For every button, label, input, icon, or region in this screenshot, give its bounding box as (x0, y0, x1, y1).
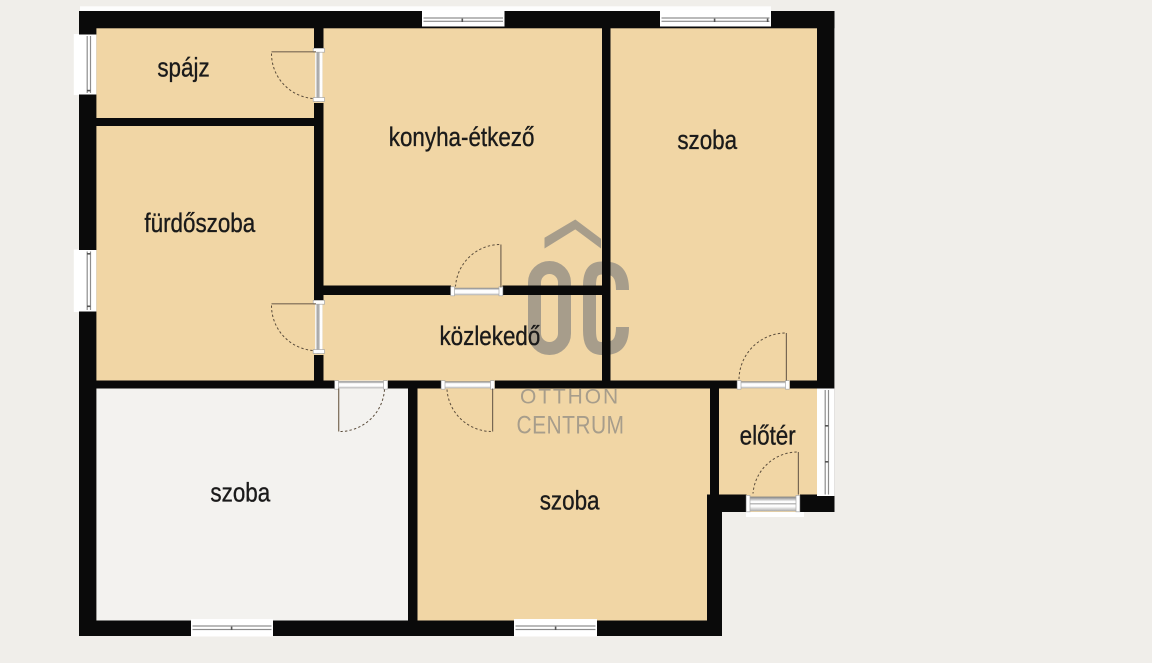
svg-text:konyha-étkező: konyha-étkező (389, 123, 535, 152)
svg-text:CENTRUM: CENTRUM (517, 411, 625, 439)
svg-text:előtér: előtér (740, 422, 796, 451)
svg-text:szoba: szoba (540, 487, 600, 516)
svg-text:szoba: szoba (677, 126, 737, 155)
svg-text:közlekedő: közlekedő (439, 322, 540, 351)
svg-text:fürdőszoba: fürdőszoba (144, 209, 255, 238)
svg-text:szoba: szoba (210, 479, 270, 508)
svg-text:OTTHON: OTTHON (520, 385, 620, 408)
svg-text:spájz: spájz (157, 54, 209, 83)
